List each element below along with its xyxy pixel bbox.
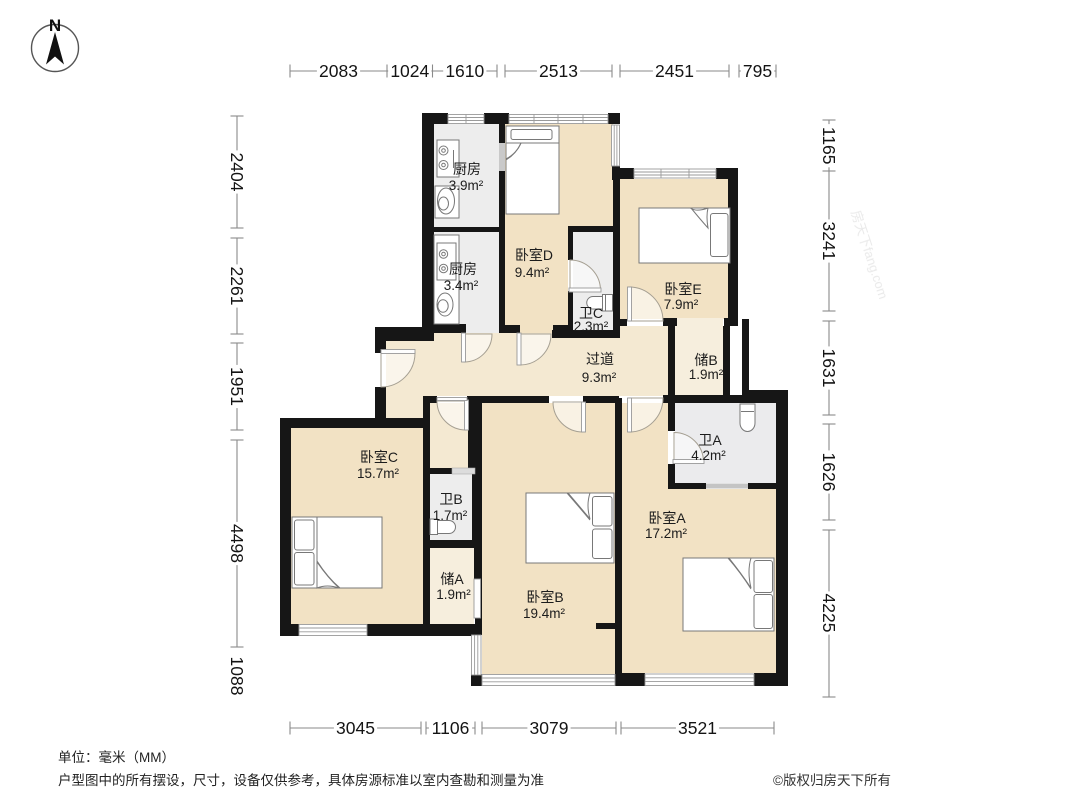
- svg-text:1.7m²: 1.7m²: [433, 508, 468, 523]
- svg-text:2513: 2513: [539, 61, 578, 81]
- svg-text:储B: 储B: [694, 352, 717, 368]
- svg-text:7.9m²: 7.9m²: [664, 297, 699, 312]
- svg-text:卧室B: 卧室B: [526, 589, 563, 605]
- svg-text:1.9m²: 1.9m²: [689, 367, 724, 382]
- svg-text:1610: 1610: [445, 61, 484, 81]
- svg-text:过道: 过道: [586, 351, 614, 367]
- svg-text:卫A: 卫A: [698, 432, 722, 448]
- svg-text:19.4m²: 19.4m²: [523, 606, 566, 621]
- svg-text:单位：毫米（MM）: 单位：毫米（MM）: [58, 749, 175, 765]
- svg-text:1165: 1165: [819, 127, 839, 165]
- svg-text:4498: 4498: [227, 524, 247, 563]
- svg-text:1024: 1024: [390, 61, 429, 81]
- svg-text:9.4m²: 9.4m²: [515, 265, 550, 280]
- svg-text:795: 795: [743, 61, 772, 81]
- svg-text:3.4m²: 3.4m²: [444, 278, 479, 293]
- svg-text:9.3m²: 9.3m²: [582, 370, 617, 385]
- svg-text:3241: 3241: [819, 222, 839, 261]
- svg-text:2.3m²: 2.3m²: [574, 319, 609, 334]
- svg-text:2404: 2404: [227, 153, 247, 192]
- svg-text:2451: 2451: [655, 61, 694, 81]
- svg-text:3521: 3521: [678, 718, 717, 738]
- svg-text:1088: 1088: [227, 657, 247, 696]
- svg-text:户型图中的所有摆设，尺寸，设备仅供参考，具体房源标准以室内查: 户型图中的所有摆设，尺寸，设备仅供参考，具体房源标准以室内查勘和测量为准: [58, 772, 544, 788]
- svg-text:2083: 2083: [319, 61, 358, 81]
- svg-text:卧室D: 卧室D: [515, 247, 553, 263]
- svg-text:1626: 1626: [819, 453, 839, 492]
- svg-text:1631: 1631: [819, 349, 839, 388]
- svg-text:1106: 1106: [432, 718, 470, 738]
- svg-text:3045: 3045: [336, 718, 375, 738]
- svg-text:©版权归房天下所有: ©版权归房天下所有: [773, 772, 891, 788]
- svg-text:卧室A: 卧室A: [648, 510, 686, 526]
- svg-text:2261: 2261: [227, 267, 247, 306]
- svg-text:卫B: 卫B: [439, 491, 462, 507]
- svg-text:1951: 1951: [227, 367, 247, 406]
- svg-text:卧室E: 卧室E: [664, 281, 701, 297]
- svg-text:3.9m²: 3.9m²: [449, 178, 484, 193]
- svg-text:4225: 4225: [819, 594, 839, 633]
- svg-text:卧室C: 卧室C: [360, 449, 398, 465]
- svg-text:15.7m²: 15.7m²: [357, 466, 400, 481]
- svg-text:4.2m²: 4.2m²: [691, 448, 726, 463]
- svg-text:1.9m²: 1.9m²: [436, 587, 471, 602]
- svg-text:厨房: 厨房: [449, 261, 477, 277]
- svg-text:储A: 储A: [440, 571, 464, 587]
- svg-text:厨房: 厨房: [453, 161, 481, 177]
- svg-text:17.2m²: 17.2m²: [645, 526, 688, 541]
- svg-text:3079: 3079: [530, 718, 569, 738]
